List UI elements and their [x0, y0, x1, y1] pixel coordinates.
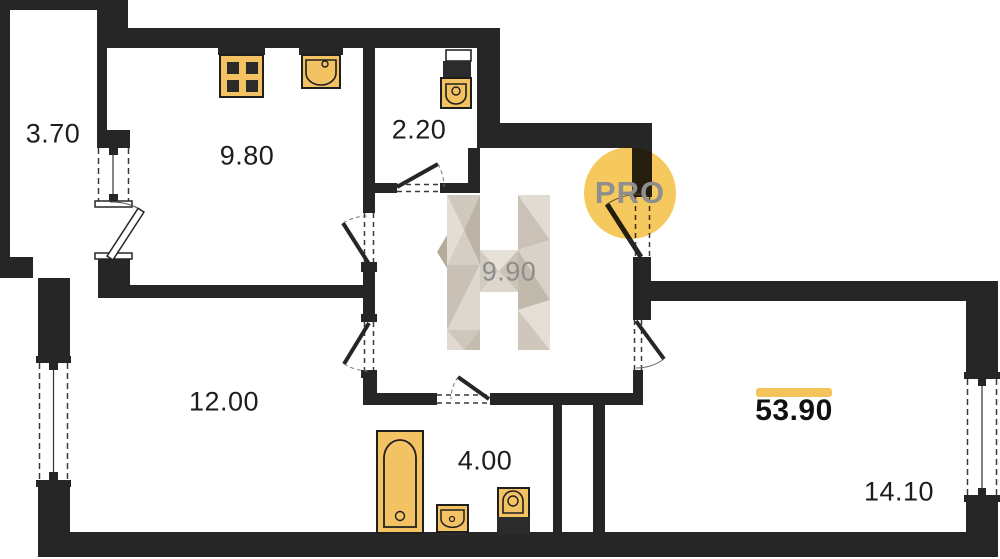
door-room-left	[344, 322, 374, 371]
door-bathroom	[437, 377, 490, 403]
toilet-small-icon	[441, 50, 471, 108]
bathtub-icon	[377, 431, 423, 533]
door-bathroom-small	[397, 164, 444, 192]
door-kitchen	[343, 213, 374, 264]
door-room-right	[635, 320, 665, 370]
room-area-label-loggia: 3.70	[26, 119, 81, 150]
stove-icon	[218, 48, 265, 97]
floor-plan: PRO 3.70 9.80 2.20 9.90 12.00 4.00 14.10…	[0, 0, 1000, 559]
room-area-label-bathroom: 4.00	[458, 446, 513, 477]
room-area-label-hallway: 9.90	[482, 257, 537, 288]
room-area-label-room-right: 14.10	[864, 477, 934, 508]
window-room-left	[40, 362, 68, 480]
room-area-label-kitchen: 9.80	[220, 141, 275, 172]
kitchen-sink-icon	[299, 48, 343, 88]
toilet-icon	[497, 488, 530, 535]
door-balcony	[107, 202, 144, 260]
pro-badge-label: PRO	[584, 147, 676, 239]
room-area-label-bathroom-small: 2.20	[392, 115, 447, 146]
washbasin-icon	[437, 505, 468, 535]
total-area-label: 53.90	[755, 394, 833, 428]
room-area-label-room-left: 12.00	[189, 387, 259, 418]
window-room-right	[968, 378, 997, 496]
